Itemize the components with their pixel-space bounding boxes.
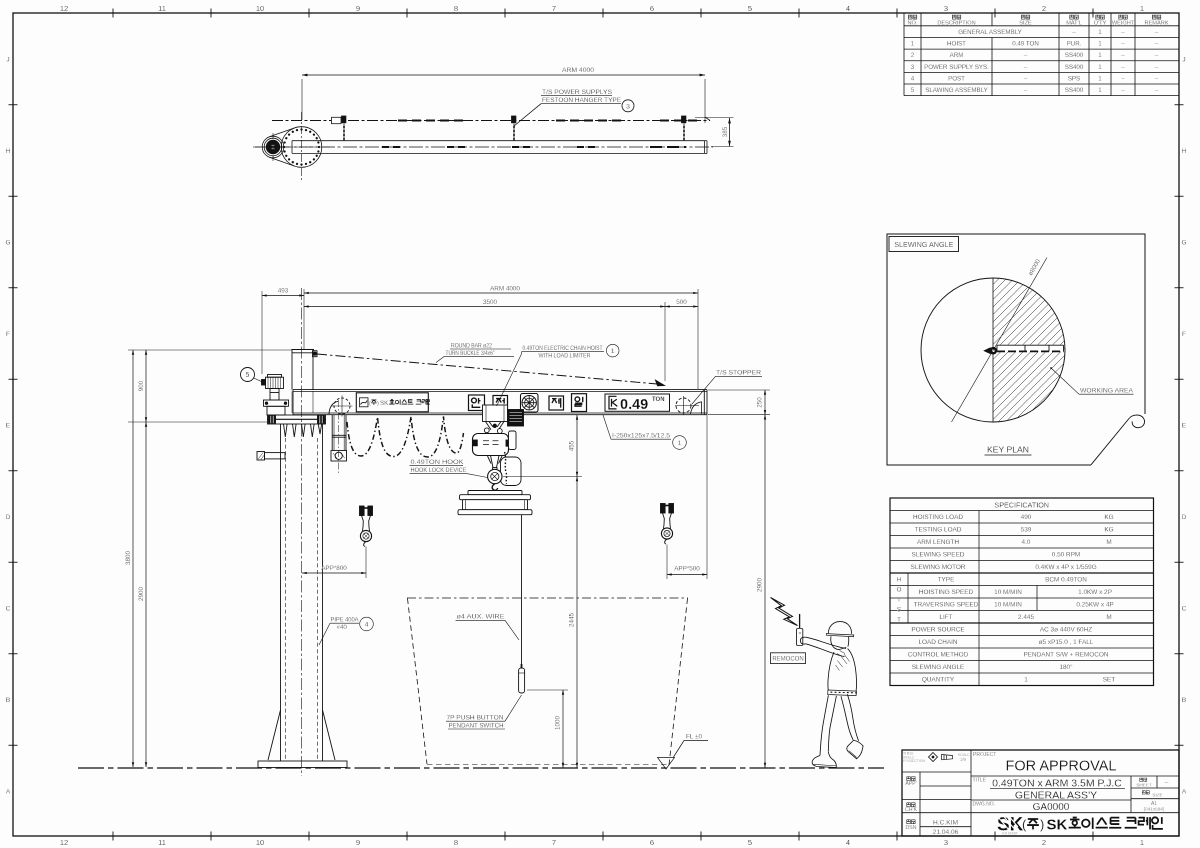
svg-text:QUANTITY: QUANTITY: [922, 677, 955, 684]
svg-text:21.04.06: 21.04.06: [933, 829, 959, 836]
svg-text:3500: 3500: [483, 299, 498, 306]
svg-text:0.49: 0.49: [620, 397, 648, 413]
svg-text:I-250x125x7.5/12.5: I-250x125x7.5/12.5: [612, 433, 671, 440]
svg-text:11: 11: [158, 838, 166, 847]
svg-text:GENERAL ASS'Y: GENERAL ASS'Y: [1015, 789, 1097, 801]
svg-text:AC 3ø 440V 60HZ: AC 3ø 440V 60HZ: [1040, 627, 1092, 634]
svg-text:G: G: [1181, 239, 1186, 246]
svg-text:HOISTING LOAD: HOISTING LOAD: [913, 514, 963, 521]
svg-text:2445: 2445: [569, 613, 576, 628]
svg-text:ARM: ARM: [950, 52, 964, 59]
svg-text:SHEET: SHEET: [1136, 782, 1152, 787]
svg-text:1: 1: [611, 348, 615, 355]
svg-text:5: 5: [246, 372, 250, 379]
svg-text:–: –: [1072, 29, 1076, 36]
svg-text:0.50 RPM: 0.50 RPM: [1052, 552, 1080, 559]
svg-text:Q'TY: Q'TY: [1094, 20, 1107, 26]
svg-text:10: 10: [256, 838, 264, 847]
svg-text:TRAVERSING SPEED: TRAVERSING SPEED: [914, 602, 979, 609]
svg-text:500: 500: [676, 299, 687, 306]
svg-text:POST: POST: [948, 75, 965, 82]
svg-text:1000: 1000: [555, 716, 562, 731]
svg-text:10: 10: [256, 4, 264, 13]
svg-text:SK: SK: [1047, 817, 1068, 834]
svg-text:APP*800: APP*800: [321, 565, 347, 572]
svg-text:D: D: [1182, 514, 1187, 521]
svg-text:2: 2: [1042, 838, 1046, 847]
svg-text:DSN: DSN: [906, 825, 917, 831]
svg-text:A: A: [6, 788, 11, 795]
svg-text:2900: 2900: [138, 587, 145, 602]
svg-text:5: 5: [748, 4, 752, 13]
svg-text:TON: TON: [652, 397, 665, 403]
svg-text:SET: SET: [1103, 677, 1116, 684]
svg-text:SLEWING MOTOR: SLEWING MOTOR: [911, 564, 966, 571]
svg-text:1: 1: [1024, 677, 1028, 684]
svg-text:1: 1: [1140, 838, 1144, 847]
svg-text:SS400: SS400: [1065, 52, 1084, 59]
svg-text:0.49TON x ARM 3.5M P.J.C: 0.49TON x ARM 3.5M P.J.C: [992, 778, 1122, 790]
svg-text:7: 7: [552, 4, 556, 13]
svg-text:J: J: [6, 56, 9, 63]
svg-text:ARM 4000: ARM 4000: [562, 67, 594, 74]
svg-text:1: 1: [1098, 75, 1102, 82]
svg-text:–: –: [1121, 52, 1125, 59]
svg-text:SS400: SS400: [1065, 87, 1084, 94]
svg-text:C: C: [6, 605, 11, 612]
svg-text:490: 490: [1021, 514, 1032, 521]
svg-text:D: D: [6, 514, 11, 521]
svg-text:REMARK: REMARK: [1145, 20, 1169, 26]
svg-text:SLAWING ASSEMBLY: SLAWING ASSEMBLY: [925, 87, 988, 94]
svg-text:455: 455: [569, 440, 576, 451]
svg-text:–: –: [1024, 52, 1028, 59]
svg-text:SPS: SPS: [1068, 75, 1080, 82]
svg-text:1: 1: [1098, 29, 1102, 36]
svg-text:BCM 0.49TON: BCM 0.49TON: [1045, 577, 1087, 584]
svg-text:FL ±0: FL ±0: [686, 734, 703, 741]
svg-text:B: B: [6, 697, 10, 704]
svg-text:ARM 4000: ARM 4000: [490, 286, 520, 293]
svg-text:F: F: [6, 331, 10, 338]
svg-text:6: 6: [650, 838, 654, 847]
svg-text:1: 1: [1098, 52, 1102, 59]
svg-text:5: 5: [748, 838, 752, 847]
svg-text:E: E: [1182, 422, 1187, 429]
svg-text:1/9: 1/9: [960, 757, 966, 762]
svg-text:DWG.NO.: DWG.NO.: [973, 802, 996, 808]
svg-text:ARM LENGTH: ARM LENGTH: [917, 539, 959, 546]
svg-text:250: 250: [757, 397, 764, 408]
svg-text:GA0000: GA0000: [1033, 802, 1070, 813]
svg-text:9: 9: [356, 838, 360, 847]
svg-text:POWER SUPPLY SYS.: POWER SUPPLY SYS.: [924, 64, 989, 71]
svg-text:2: 2: [1042, 4, 1046, 13]
svg-text:8: 8: [454, 838, 458, 847]
svg-text:10 M/MIN: 10 M/MIN: [994, 602, 1022, 609]
svg-text:(: (: [369, 401, 371, 407]
svg-text:H: H: [897, 577, 901, 584]
svg-text:0.25KW x 4P: 0.25KW x 4P: [1076, 602, 1113, 609]
svg-text:(: (: [1022, 817, 1027, 832]
svg-text:0.49 TON: 0.49 TON: [1012, 41, 1039, 48]
svg-text:7P PUSH BUTTON: 7P PUSH BUTTON: [447, 715, 504, 722]
svg-text:WORKING AREA: WORKING AREA: [1080, 387, 1134, 394]
svg-text:KG: KG: [1104, 514, 1113, 521]
svg-text:PIPE 400A: PIPE 400A: [331, 617, 360, 624]
svg-text:GENERAL ASSEMBLY: GENERAL ASSEMBLY: [958, 29, 1022, 36]
svg-text:LIFT: LIFT: [939, 614, 952, 621]
svg-text:T/S POWER SUPPLYS: T/S POWER SUPPLYS: [542, 89, 612, 96]
svg-text:KG: KG: [1104, 527, 1113, 534]
svg-text:2: 2: [911, 52, 915, 59]
svg-text:–: –: [1121, 29, 1125, 36]
svg-text:T/S STOPPER: T/S STOPPER: [716, 370, 761, 377]
svg-text:CONTROL METHOD: CONTROL METHOD: [908, 652, 969, 659]
svg-text:): ): [377, 401, 379, 407]
svg-text:7: 7: [552, 838, 556, 847]
svg-text:ø4 AUX. WIRE: ø4 AUX. WIRE: [457, 614, 505, 621]
svg-text:539: 539: [1021, 527, 1032, 534]
svg-text:SK: SK: [380, 400, 389, 407]
svg-text:DESCRIPTION: DESCRIPTION: [937, 20, 975, 26]
svg-text:KEY PLAN: KEY PLAN: [987, 445, 1029, 455]
svg-text:–: –: [1155, 41, 1159, 48]
svg-text:#40: #40: [337, 624, 348, 631]
svg-text:–: –: [1155, 75, 1159, 82]
svg-text:TESTING LOAD: TESTING LOAD: [915, 527, 962, 534]
svg-text:3: 3: [944, 4, 948, 13]
svg-text:C: C: [1182, 605, 1187, 612]
svg-text:3: 3: [626, 103, 630, 110]
svg-text:–: –: [1155, 52, 1159, 59]
svg-text:1: 1: [911, 41, 915, 48]
svg-text:3: 3: [944, 838, 948, 847]
svg-text:FOR APPROVAL: FOR APPROVAL: [1006, 759, 1117, 775]
svg-text:PROJECTION: PROJECTION: [903, 759, 925, 763]
svg-text:H.C.KIM: H.C.KIM: [933, 820, 958, 827]
svg-text:SIZE: SIZE: [1152, 793, 1162, 798]
svg-text:–: –: [1155, 64, 1159, 71]
svg-text:HOIST: HOIST: [947, 41, 966, 48]
svg-text:0.49TON ELECTRIC CHAIN HOIS: 0.49TON ELECTRIC CHAIN HOIST: [523, 345, 603, 352]
svg-text:SLEWING ANGLE: SLEWING ANGLE: [894, 240, 953, 249]
svg-text:2.445: 2.445: [1018, 614, 1034, 621]
svg-text:PENDANT S/W + REMOCON: PENDANT S/W + REMOCON: [1024, 652, 1109, 659]
svg-text:POWER SOURCE: POWER SOURCE: [911, 627, 964, 634]
svg-text:(841x594): (841x594): [1144, 807, 1165, 812]
svg-text:0.49TON HOOK: 0.49TON HOOK: [411, 459, 465, 466]
svg-text:TURN BUCKLE 3/4x6": TURN BUCKLE 3/4x6": [446, 350, 495, 357]
svg-text:E: E: [6, 422, 11, 429]
svg-text:F: F: [1182, 331, 1186, 338]
svg-text:LOAD CHAIN: LOAD CHAIN: [918, 639, 957, 646]
svg-text:180°: 180°: [1059, 663, 1073, 671]
svg-text:T: T: [897, 617, 901, 624]
svg-text:6: 6: [650, 4, 654, 13]
svg-text:S.K HOIST: S.K HOIST: [1002, 832, 1018, 836]
svg-text:NO.: NO.: [908, 20, 918, 26]
svg-text:J: J: [1182, 56, 1185, 63]
svg-text:1: 1: [678, 440, 682, 447]
svg-text:PROJECT: PROJECT: [973, 752, 996, 758]
svg-text:M: M: [1106, 539, 1111, 546]
svg-text:12: 12: [60, 838, 68, 847]
svg-text:M: M: [1106, 614, 1111, 621]
svg-text:8: 8: [454, 4, 458, 13]
svg-text:–: –: [1121, 41, 1125, 48]
svg-text:SS400: SS400: [1065, 64, 1084, 71]
svg-text:APP*500: APP*500: [674, 566, 700, 573]
svg-text:5: 5: [911, 87, 915, 94]
svg-text:ROUND BAR ø22: ROUND BAR ø22: [451, 343, 492, 350]
svg-text:–: –: [1155, 29, 1159, 36]
svg-text:WITH LOAD LIMITER: WITH LOAD LIMITER: [539, 353, 591, 360]
svg-text:12: 12: [60, 4, 68, 13]
svg-text:REMOCON: REMOCON: [772, 657, 803, 663]
svg-text:1: 1: [1098, 41, 1102, 48]
svg-text:ø5 xP15.0 , 1 FALL: ø5 xP15.0 , 1 FALL: [1039, 639, 1094, 646]
svg-text:1: 1: [1098, 64, 1102, 71]
svg-text:900: 900: [138, 380, 145, 391]
svg-text:S: S: [897, 607, 901, 614]
svg-text:9: 9: [356, 4, 360, 13]
svg-text:TYPE: TYPE: [938, 577, 955, 584]
svg-text:SLEWING SPEED: SLEWING SPEED: [912, 552, 965, 559]
svg-text:PENDANT SWITCH: PENDANT SWITCH: [449, 722, 504, 729]
svg-text:3800: 3800: [125, 551, 132, 566]
svg-text:1: 1: [1140, 4, 1144, 13]
svg-text:–: –: [1024, 64, 1028, 71]
svg-text:I: I: [898, 597, 900, 604]
svg-text:11: 11: [158, 4, 166, 13]
svg-text:4.0: 4.0: [1022, 539, 1031, 546]
svg-text:HOOK LOCK DEVICE: HOOK LOCK DEVICE: [411, 467, 467, 474]
svg-text:TITLE: TITLE: [973, 778, 987, 784]
svg-text:4: 4: [846, 4, 850, 13]
svg-text:10 M/MIN: 10 M/MIN: [994, 589, 1022, 596]
svg-text:MAT'L: MAT'L: [1066, 20, 1082, 26]
svg-text:HOISTING SPEED: HOISTING SPEED: [919, 589, 974, 596]
svg-text:1.0KW x 2P: 1.0KW x 2P: [1078, 589, 1112, 596]
svg-text:FESTOON HANGER TYPE: FESTOON HANGER TYPE: [542, 97, 621, 104]
svg-text:4: 4: [846, 838, 850, 847]
svg-text:SPECIFICATION: SPECIFICATION: [994, 500, 1049, 509]
svg-text:A: A: [1182, 788, 1187, 795]
svg-text:4: 4: [911, 75, 915, 82]
svg-text:SIZE: SIZE: [1019, 20, 1032, 26]
svg-text:O: O: [897, 587, 902, 594]
svg-text:H: H: [1182, 148, 1187, 155]
svg-text:4: 4: [365, 622, 369, 629]
svg-text:493: 493: [278, 288, 289, 295]
svg-text:APP': APP': [905, 781, 916, 787]
svg-text:3: 3: [911, 64, 915, 71]
svg-text:0.4KW x 4P x 1/559G: 0.4KW x 4P x 1/559G: [1035, 564, 1096, 571]
svg-text:–: –: [1121, 75, 1125, 82]
svg-text:–: –: [1155, 87, 1159, 94]
svg-text:2900: 2900: [757, 578, 764, 593]
svg-text:–: –: [1165, 780, 1169, 787]
svg-text:G: G: [5, 239, 10, 246]
svg-text:PUR.: PUR.: [1067, 41, 1082, 48]
svg-text:CH'K: CH'K: [905, 807, 917, 813]
svg-text:–: –: [1121, 64, 1125, 71]
svg-text:1: 1: [1098, 87, 1102, 94]
svg-text:–: –: [1024, 75, 1028, 82]
svg-text:–: –: [1121, 87, 1125, 94]
svg-text:385: 385: [722, 126, 729, 137]
svg-text:SLEWING ANGLE: SLEWING ANGLE: [912, 664, 965, 671]
svg-text:B: B: [1182, 697, 1186, 704]
svg-text:WEIGHT: WEIGHT: [1112, 20, 1135, 26]
svg-text:H: H: [6, 148, 11, 155]
svg-text:): ): [1040, 817, 1044, 832]
svg-text:–: –: [1024, 87, 1028, 94]
